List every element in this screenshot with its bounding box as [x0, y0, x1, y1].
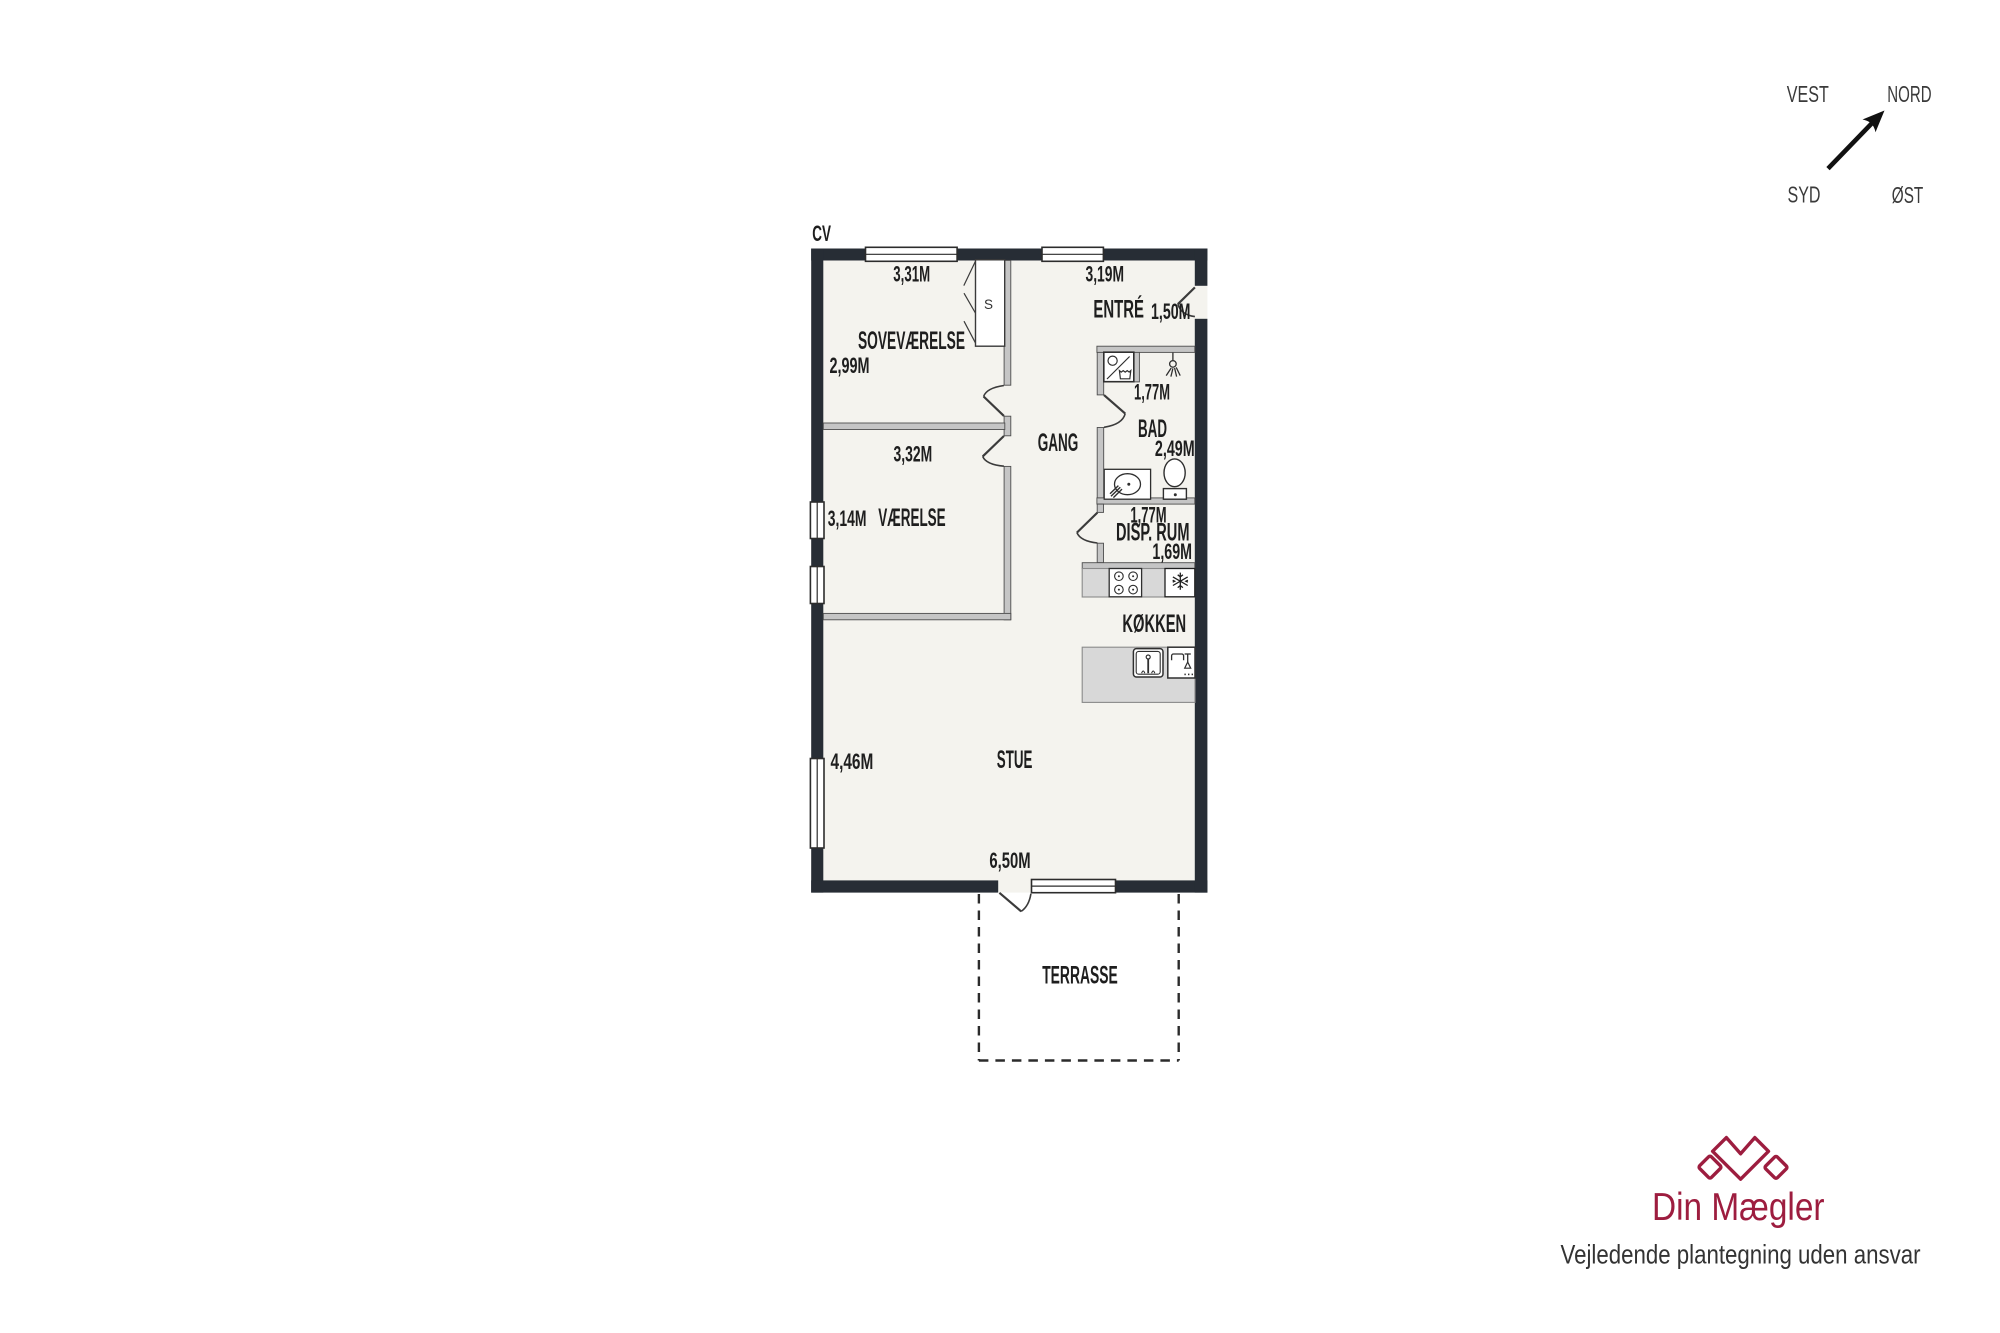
svg-text:2,49M: 2,49M [1155, 436, 1195, 461]
svg-text:KØKKEN: KØKKEN [1122, 610, 1186, 638]
svg-text:SYD: SYD [1788, 181, 1821, 207]
svg-text:1,77M: 1,77M [1134, 379, 1170, 404]
svg-text:4,46M: 4,46M [831, 749, 874, 774]
svg-text:GANG: GANG [1038, 429, 1079, 457]
svg-text:Vejledende plantegning uden an: Vejledende plantegning uden ansvar [1561, 1240, 1921, 1270]
svg-text:3,19M: 3,19M [1086, 261, 1125, 286]
svg-text:3,32M: 3,32M [894, 441, 933, 466]
svg-text:STUE: STUE [997, 746, 1033, 774]
svg-text:TERRASSE: TERRASSE [1042, 961, 1118, 989]
svg-text:6,50M: 6,50M [989, 848, 1030, 873]
svg-text:Din Mægler: Din Mægler [1652, 1186, 1825, 1229]
svg-text:CV: CV [812, 221, 831, 246]
svg-text:NORD: NORD [1887, 81, 1931, 107]
svg-text:ENTRÉ: ENTRÉ [1093, 295, 1144, 324]
svg-text:ØST: ØST [1892, 182, 1924, 208]
svg-text:SOVEVÆRELSE: SOVEVÆRELSE [858, 327, 965, 355]
svg-text:2,99M: 2,99M [830, 353, 870, 378]
svg-text:1,50M: 1,50M [1151, 299, 1190, 324]
svg-text:VEST: VEST [1787, 81, 1829, 107]
svg-text:S: S [984, 297, 993, 312]
svg-text:1,69M: 1,69M [1152, 539, 1192, 564]
svg-text:3,31M: 3,31M [893, 262, 930, 287]
svg-text:3,14M: 3,14M [828, 506, 867, 531]
svg-text:VÆRELSE: VÆRELSE [878, 504, 946, 532]
